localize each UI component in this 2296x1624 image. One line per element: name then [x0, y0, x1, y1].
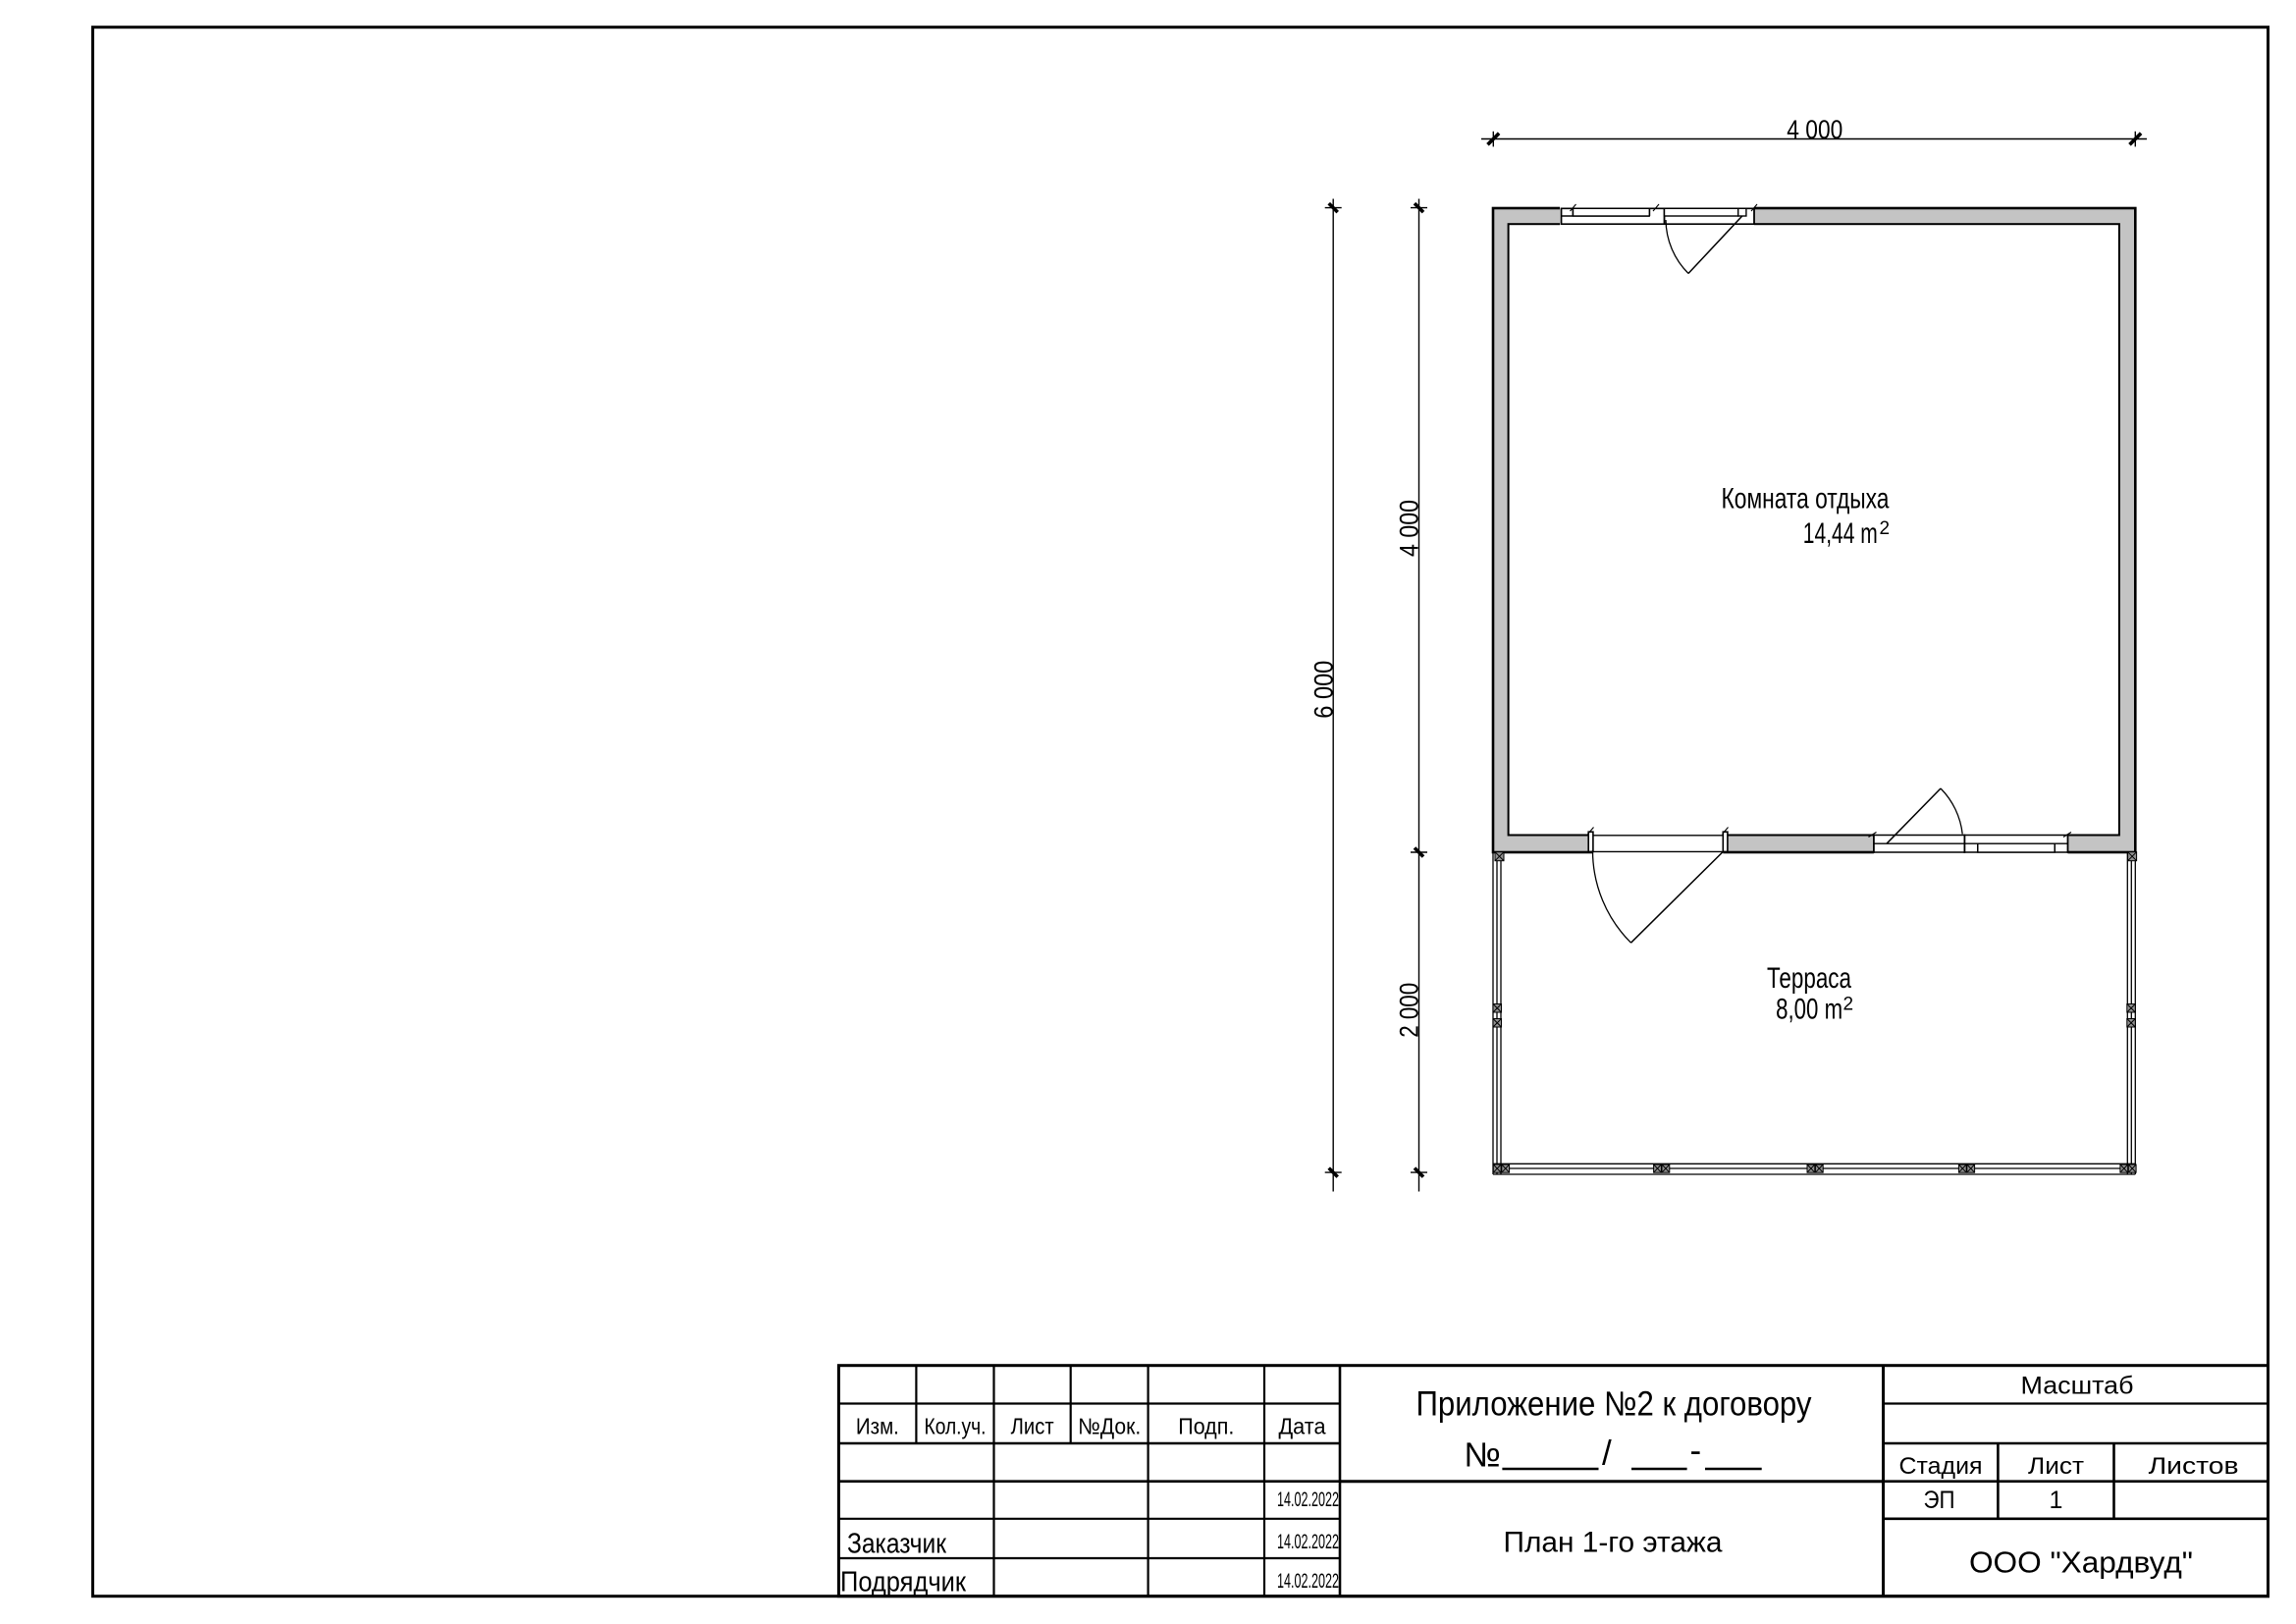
svg-text:Комната отдыха: Комната отдыха [1722, 483, 1890, 515]
svg-text:2: 2 [1880, 518, 1891, 539]
svg-text:Терраса: Терраса [1767, 962, 1851, 995]
svg-text:№Док.: №Док. [1078, 1414, 1141, 1439]
svg-text:2 000: 2 000 [1394, 983, 1423, 1038]
svg-text:Подрядчик: Подрядчик [840, 1567, 966, 1598]
svg-text:Масштаб: Масштаб [2021, 1372, 2134, 1399]
svg-text:Приложение №2 к договору: Приложение №2 к договору [1416, 1385, 1812, 1424]
svg-text:Листов: Листов [2149, 1453, 2239, 1480]
svg-text:4 000: 4 000 [1394, 500, 1423, 557]
svg-text:ЭП: ЭП [1924, 1487, 1955, 1514]
svg-text:8,00 m: 8,00 m [1776, 994, 1842, 1026]
svg-text:Лист: Лист [1011, 1414, 1054, 1439]
svg-text:14.02.2022: 14.02.2022 [1277, 1531, 1339, 1553]
svg-text:2: 2 [1843, 995, 1854, 1015]
svg-text:Дата: Дата [1279, 1414, 1326, 1439]
svg-text:1: 1 [2050, 1487, 2063, 1514]
svg-text:№: № [1464, 1436, 1501, 1475]
svg-text:ООО "Хардвуд": ООО "Хардвуд" [1969, 1545, 2193, 1580]
svg-text:4 000: 4 000 [1787, 115, 1842, 144]
svg-text:Заказчик: Заказчик [847, 1529, 946, 1560]
svg-text:-: - [1690, 1432, 1702, 1470]
svg-text:Кол.уч.: Кол.уч. [925, 1414, 987, 1439]
svg-text:6 000: 6 000 [1309, 661, 1339, 719]
svg-text:Изм.: Изм. [856, 1414, 899, 1439]
svg-text:Подп.: Подп. [1178, 1414, 1234, 1439]
svg-text:План 1-го этажа: План 1-го этажа [1504, 1527, 1723, 1559]
svg-text:/: / [1602, 1435, 1612, 1473]
svg-text:Стадия: Стадия [1899, 1453, 1983, 1480]
svg-text:14,44 m: 14,44 m [1803, 517, 1878, 550]
svg-text:14.02.2022: 14.02.2022 [1277, 1489, 1339, 1511]
svg-text:Лист: Лист [2028, 1453, 2084, 1480]
svg-text:14.02.2022: 14.02.2022 [1277, 1570, 1339, 1593]
